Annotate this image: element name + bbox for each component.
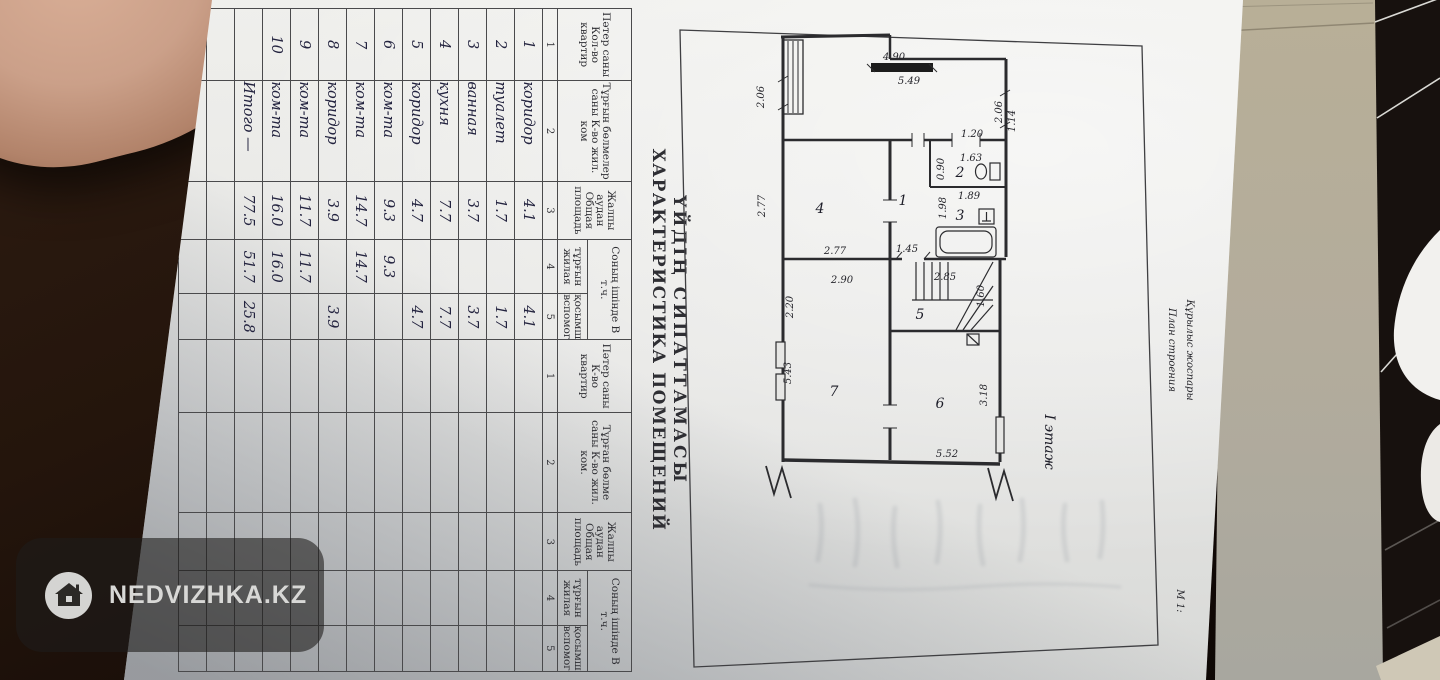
header-total-area: Жалпы аудан Общая площадь — [558, 181, 632, 239]
header-total-area-2: Жалпы аудан Общая площадь — [558, 513, 632, 571]
header-apartments: Пәтер саны Кол-во квартир — [558, 9, 632, 81]
dim-543: 5.43 — [783, 362, 794, 384]
watermark-badge: NEDVIZHKA.KZ — [16, 538, 324, 652]
totals-label: Итого — — [235, 81, 263, 181]
sink-icon — [979, 209, 994, 224]
room-label-3: 3 — [956, 208, 965, 224]
floor-note: I этаж — [1041, 413, 1057, 469]
dim-ticks — [778, 64, 1010, 128]
table-row: 7 ком-та 14.7 14.7 — [347, 9, 375, 672]
dim-090: 0.90 — [936, 157, 947, 180]
dim-290: 2.90 — [830, 275, 854, 286]
photo-scene: ҮЙДІҢ СИПАТТАМАСЫ ХАРАКТЕРИСТИКА ПОМЕЩЕН… — [0, 0, 1440, 680]
break-marks — [766, 466, 1013, 501]
house-walls — [781, 35, 1006, 464]
table-row: 6 ком-та 9.3 9.3 — [375, 9, 403, 672]
room-label-7: 7 — [830, 384, 839, 400]
dim-552: 5.52 — [936, 449, 958, 460]
dim-163: 1.63 — [960, 153, 982, 164]
table-row: 5 коридор 4.7 4.7 — [403, 9, 431, 672]
table-row: 4 кухня 7.7 7.7 — [431, 9, 459, 672]
watermark-text: NEDVIZHKA.KZ — [109, 581, 307, 610]
room-label-4: 4 — [815, 201, 825, 217]
header-including-2: Соның ішінде В т.ч. — [588, 571, 632, 672]
plan-frame — [680, 30, 1158, 667]
header-including: Соның ішінде В т.ч. — [588, 240, 632, 340]
header-apartments-2: Пәтер саны К-во квартир — [558, 340, 632, 412]
dim-114: 1.14 — [1007, 110, 1018, 132]
table-row: 3 ванная 3.7 3.7 — [459, 9, 487, 672]
header-living-2: тұрғын жилая — [558, 571, 588, 625]
dim-277-h: 2.77 — [823, 246, 847, 257]
dim-145: 1.45 — [896, 244, 918, 255]
index-row: 12 34 51 23 45 — [543, 9, 558, 672]
cardboard-folder — [1215, 0, 1383, 680]
dim-206-left: 2.06 — [756, 85, 767, 109]
header-auxiliary-2: қосымша вспомог. — [558, 625, 588, 671]
right-backdrop — [1215, 0, 1440, 680]
window-bar — [871, 63, 933, 72]
totals-aux-area: 25.8 — [235, 294, 263, 340]
header-auxiliary: қосымша вспомог. — [558, 294, 588, 340]
header-row: Пәтер саны Кол-во квартир Тұрғын бөлмеле… — [588, 9, 632, 672]
house-icon — [45, 572, 92, 619]
dim-220: 2.20 — [785, 295, 796, 319]
table-row: 2 туалет 1.7 1.7 — [487, 9, 515, 672]
bathtub-icon — [936, 227, 996, 257]
dim-490: 4.90 — [882, 52, 906, 63]
floor-plan: Құрылыс жоспары План строения М 1: I эта… — [650, 0, 1250, 680]
dim-189: 1.89 — [958, 191, 981, 202]
dim-277-v: 2.77 — [757, 194, 768, 218]
totals-total-area: 77.5 — [235, 181, 263, 239]
toilet-icon — [976, 163, 1001, 180]
room-label-1: 1 — [899, 193, 908, 209]
dim-318: 3.18 — [979, 384, 990, 406]
header-living: тұрғын жилая — [558, 240, 588, 294]
plan-scale: М 1: — [1174, 588, 1185, 612]
table-row: 1 коридор 4.1 4.1 — [515, 9, 543, 672]
plan-heading-russian: План строения — [1166, 307, 1177, 392]
dim-285: 2.85 — [933, 272, 956, 283]
header-room-count-2: Тұрған бөлме саны К-во жил. ком. — [558, 412, 632, 512]
totals-living-area: 51.7 — [235, 240, 263, 294]
room-label-2: 2 — [955, 165, 965, 181]
stove-icon — [967, 334, 979, 345]
bleed-through — [810, 500, 1120, 590]
dim-549: 5.49 — [898, 76, 921, 87]
dim-120: 1.20 — [961, 129, 984, 140]
plan-heading-kazakh: Құрылыс жоспары — [1184, 299, 1195, 400]
dim-160: 1.60 — [976, 284, 987, 307]
header-room-count: Тұрғын бөлмелер саны К-во жил. ком — [558, 81, 632, 181]
room-label-5: 5 — [916, 307, 925, 323]
dim-198: 1.98 — [938, 197, 949, 219]
dim-206-right: 2.06 — [994, 100, 1005, 124]
room-label-6: 6 — [936, 396, 945, 412]
